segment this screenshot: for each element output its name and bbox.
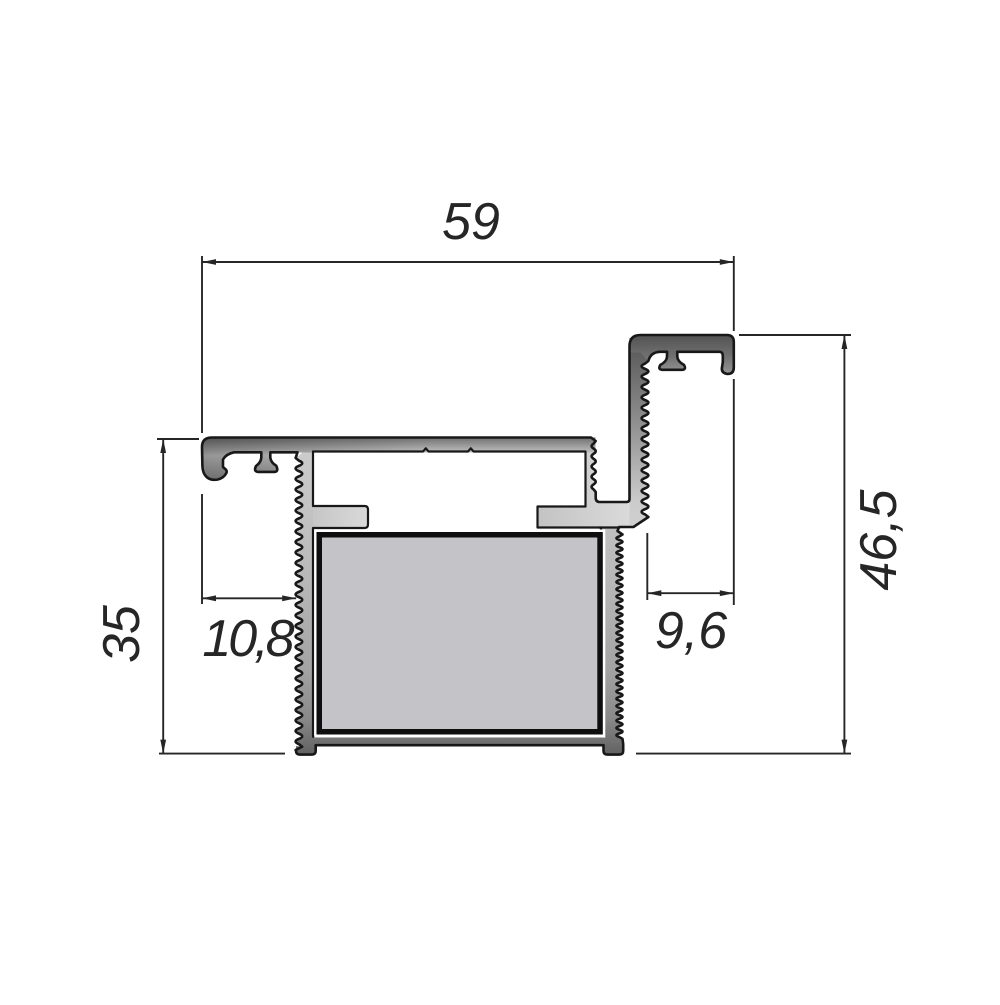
svg-text:46,5: 46,5 xyxy=(850,488,908,590)
svg-text:59: 59 xyxy=(442,193,500,251)
svg-text:9,6: 9,6 xyxy=(655,602,727,660)
svg-text:35: 35 xyxy=(93,604,151,663)
svg-text:10,8: 10,8 xyxy=(202,610,294,668)
